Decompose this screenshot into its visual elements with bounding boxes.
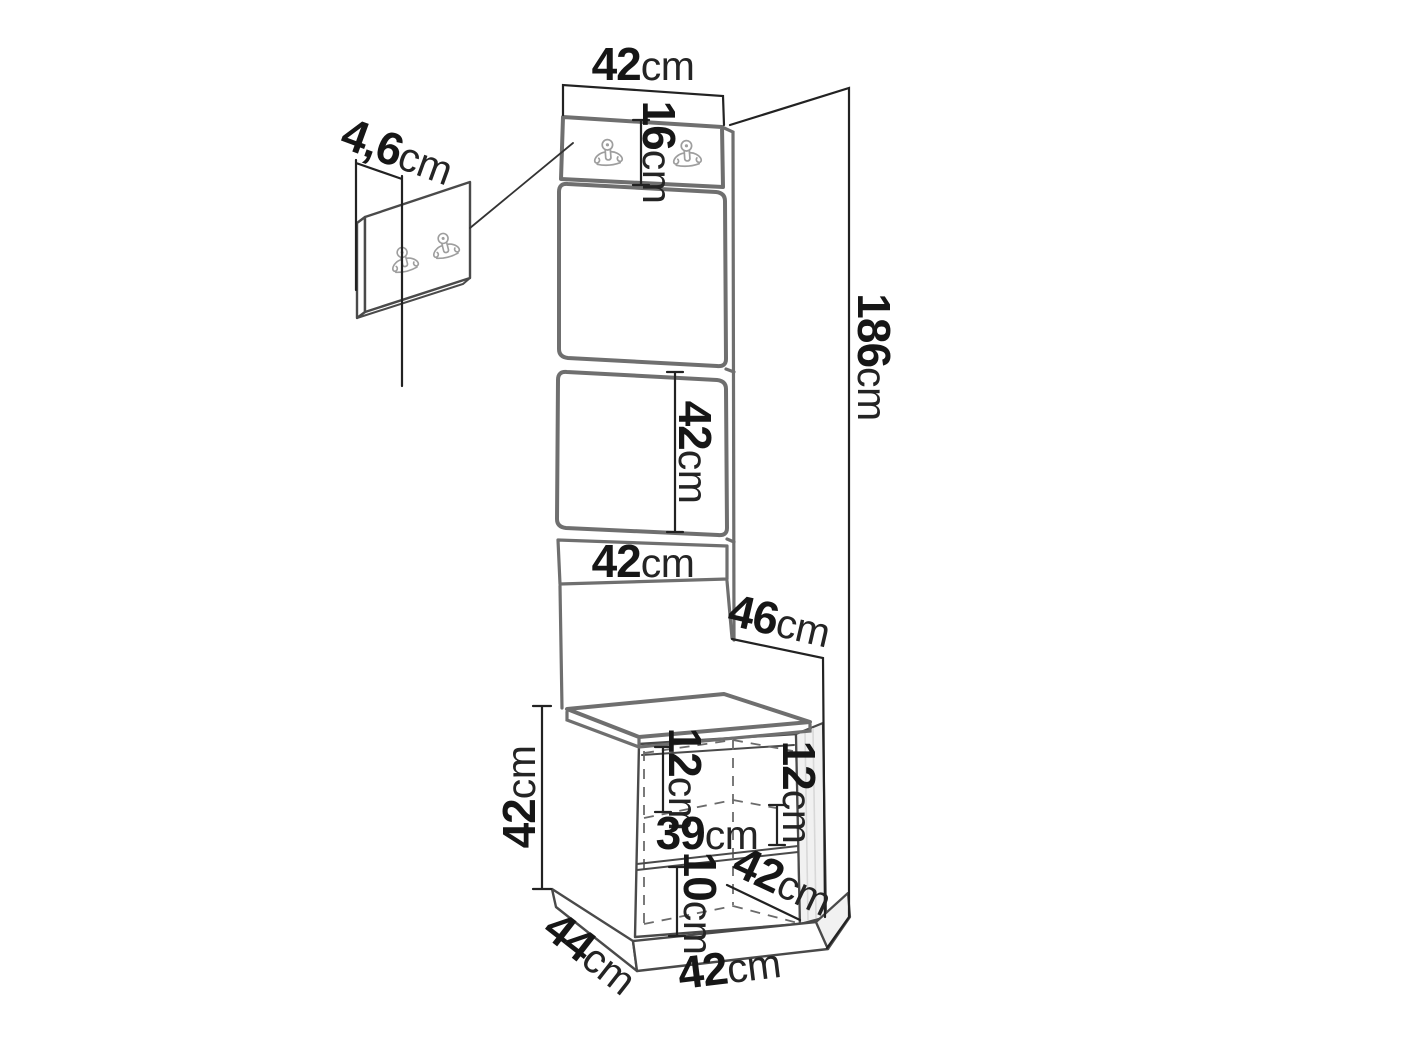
diagram-canvas: 42cm 16cm 4,6cm 186cm 42cm 42cm 46cm 42c…	[0, 0, 1408, 1056]
wall-panel-front	[365, 182, 470, 312]
label-top-width: 42cm	[592, 38, 695, 90]
label-small-panel-thickness: 4,6cm	[335, 107, 460, 195]
label-middle-opening-height: 12cm	[773, 741, 825, 844]
label-total-height: 186cm	[848, 293, 900, 420]
label-total-depth: 46cm	[724, 584, 836, 658]
label-bottom-opening-height: 10cm	[674, 852, 726, 955]
label-hook-strip-height: 16cm	[633, 101, 685, 204]
panel-cushion-upper	[559, 184, 726, 366]
label-mid-panel-width: 42cm	[592, 535, 695, 587]
panel-lower-left-edge	[560, 586, 562, 708]
label-bench-height: 42cm	[493, 746, 545, 849]
label-mid-panel-height: 42cm	[669, 401, 721, 504]
